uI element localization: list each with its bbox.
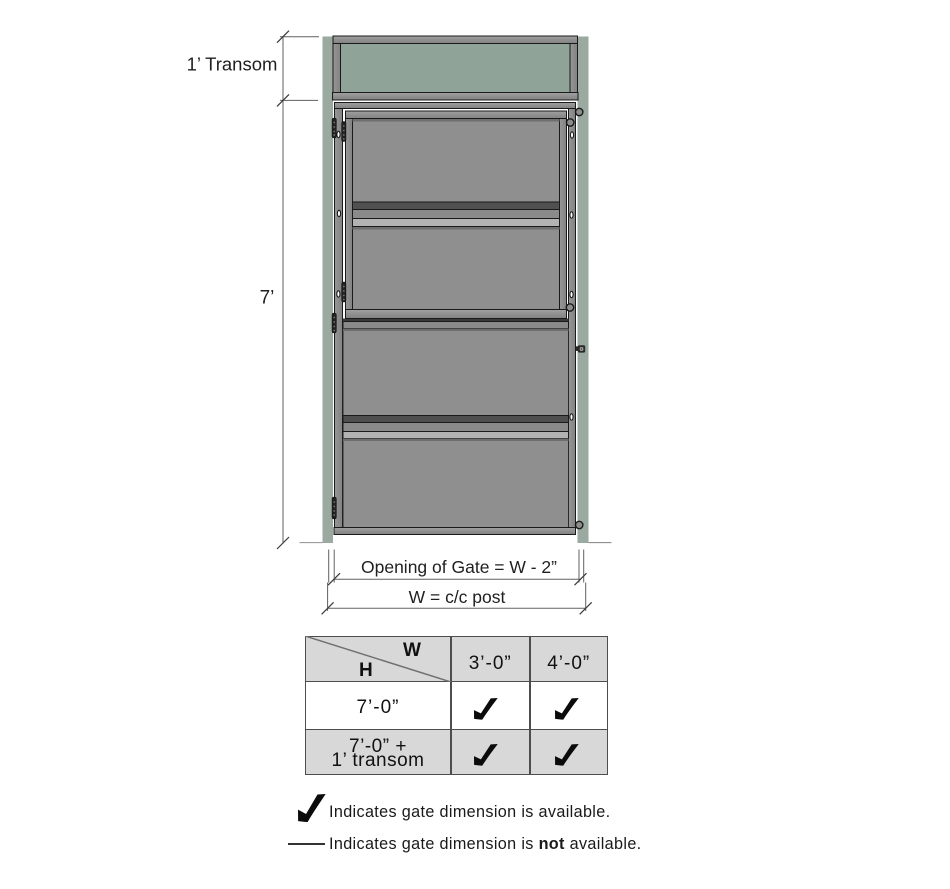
svg-text:Opening of Gate = W - 2”: Opening of Gate = W - 2” [361, 557, 557, 577]
svg-text:7’: 7’ [260, 288, 275, 309]
svg-text:1’ Transom: 1’ Transom [187, 54, 278, 75]
svg-text:W = c/c post: W = c/c post [409, 587, 506, 607]
